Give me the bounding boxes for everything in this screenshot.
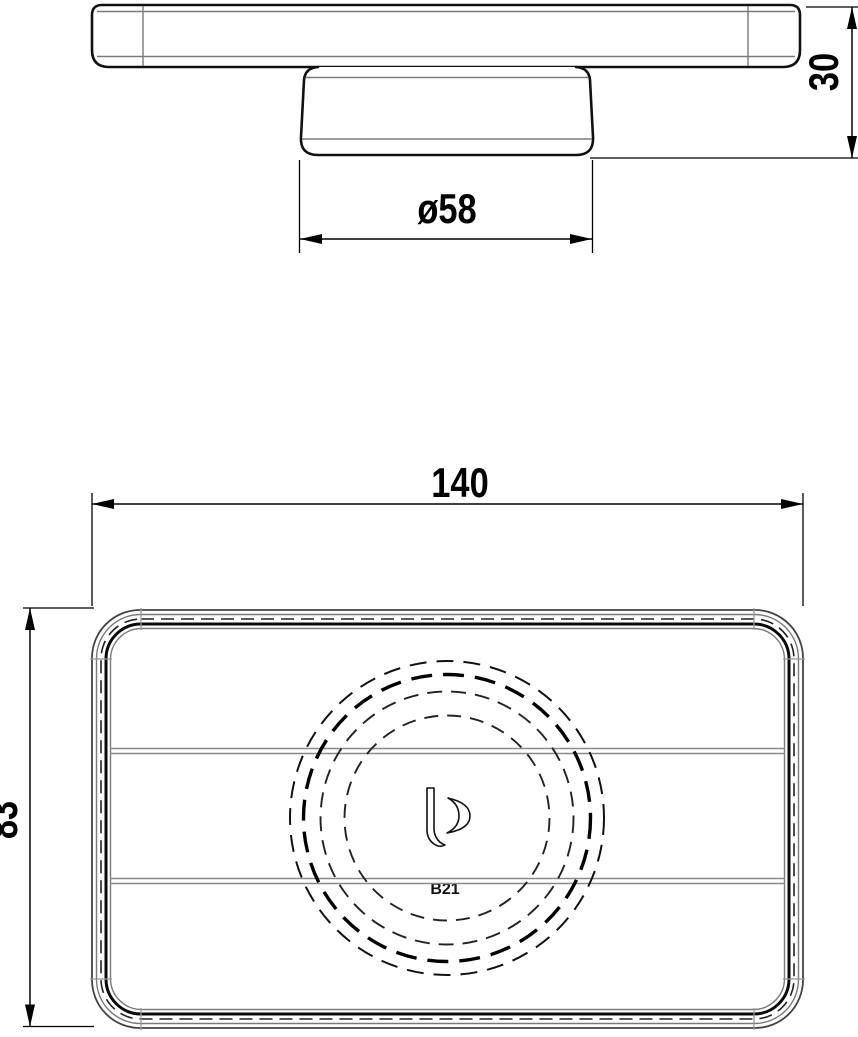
arrowhead-left xyxy=(92,499,114,509)
dimension-cup-diameter: ø58 xyxy=(300,160,593,253)
plate-outline xyxy=(92,5,800,67)
arrowhead-top xyxy=(25,608,35,630)
technical-drawing-page: ø58 30 xyxy=(0,0,858,1037)
hidden-cup-circles xyxy=(290,661,604,975)
dimension-depth: 83 xyxy=(0,608,94,1027)
drawing-canvas: ø58 30 xyxy=(0,0,858,1037)
dim-label-width: 140 xyxy=(431,460,488,507)
dim-label-height: 30 xyxy=(801,53,848,91)
rail-lines xyxy=(110,749,785,884)
arrowhead-right xyxy=(781,499,803,509)
arrowhead-bottom xyxy=(25,1005,35,1027)
dimension-width: 140 xyxy=(92,460,803,606)
corner-seam-ticks xyxy=(90,608,805,1030)
arrowhead-bottom xyxy=(847,136,857,158)
dashed-edge-outline xyxy=(101,619,794,1019)
brand-logo-b-icon xyxy=(427,788,470,846)
dim-label-cup-diameter: ø58 xyxy=(417,186,476,233)
arrowhead-right xyxy=(570,234,592,244)
side-view: ø58 30 xyxy=(92,5,858,253)
arrowhead-left xyxy=(300,234,322,244)
cup-outline xyxy=(301,67,593,155)
top-view: B21 140 xyxy=(0,460,805,1030)
dish-outlines xyxy=(92,610,803,1028)
arrowhead-top xyxy=(847,7,857,29)
dim-label-depth: 83 xyxy=(0,801,27,839)
